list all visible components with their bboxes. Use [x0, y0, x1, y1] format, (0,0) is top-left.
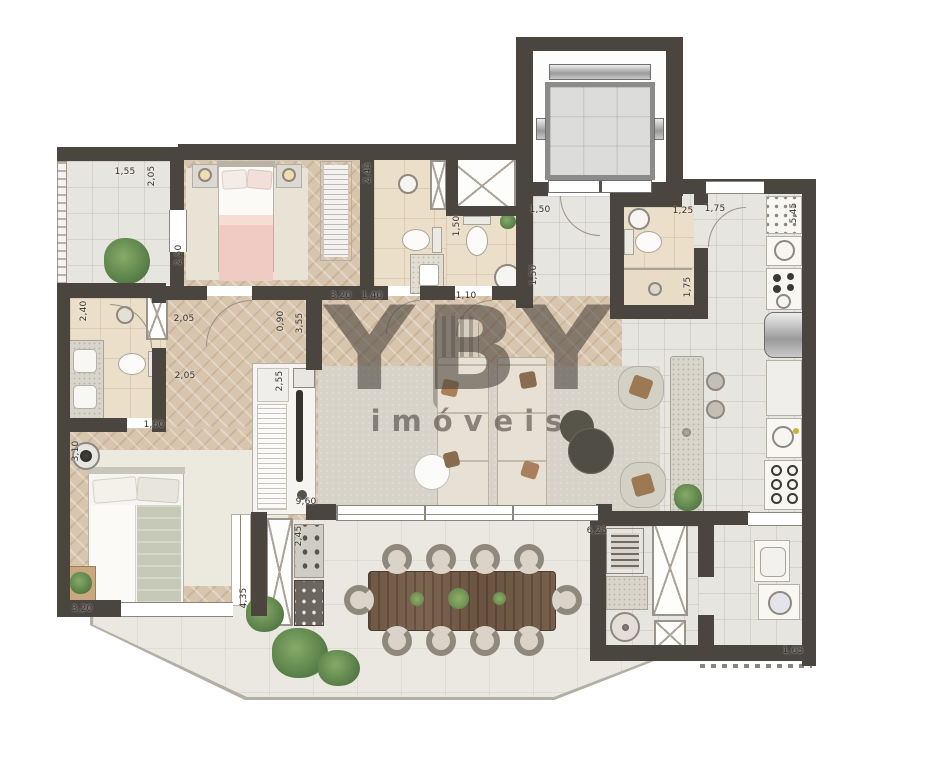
elevator-rail-left [536, 118, 546, 140]
dimension-label: 1,50 [529, 265, 539, 286]
dining-chair [426, 626, 456, 656]
toilet-bowl [118, 353, 146, 375]
bed-duvet-white [91, 505, 136, 603]
refrigerator [764, 312, 804, 358]
island-stool [706, 400, 725, 419]
dining-chair [382, 544, 412, 574]
bed-pillow [246, 169, 273, 190]
tub-basin [760, 547, 786, 577]
elevator-doors [548, 180, 652, 193]
vanity-sink [73, 385, 97, 409]
main-sink-basin [772, 426, 794, 448]
dimension-label: 1,75 [683, 277, 693, 298]
dimension-label: 1,75 [705, 204, 726, 214]
dimension-label: 2,50 [174, 245, 184, 266]
dining-chair [382, 626, 412, 656]
dimension-label: 1,50 [452, 216, 462, 237]
washing-machine [758, 584, 800, 620]
dining-chair [514, 544, 544, 574]
burner [787, 479, 798, 490]
kitchen-cooktop [766, 268, 802, 310]
throw-pillow [628, 374, 654, 400]
toilet-bowl [635, 231, 662, 253]
dining-chair [426, 544, 456, 574]
wall [694, 248, 708, 319]
floor-plan: 1,55 2,05 2,50 3,20 1,40 2,45 1,50 1,10 … [0, 0, 929, 768]
burner [787, 465, 798, 476]
powder-toilet [462, 216, 492, 258]
wall [178, 144, 528, 160]
dimension-label: 2,45 [363, 163, 373, 184]
toilet-bowl [466, 226, 488, 256]
wall [446, 158, 458, 213]
bottle-rack [294, 580, 324, 626]
wall [57, 283, 70, 617]
bed-pillow [136, 477, 180, 504]
gourmet-faucet [622, 624, 629, 631]
dimension-label: 9,60 [296, 497, 317, 507]
wall [698, 615, 714, 661]
wall [306, 286, 322, 370]
dimension-label: 1,65 [783, 646, 804, 656]
bed-headboard [217, 161, 275, 167]
dimension-label: 1,50 [530, 205, 551, 215]
wall [420, 286, 455, 300]
wall [152, 283, 166, 303]
terrace-plant [318, 650, 360, 686]
wall [516, 37, 683, 51]
prep-sink-basin [774, 240, 795, 261]
bed-headboard [87, 467, 185, 474]
kitchen-window [706, 181, 764, 194]
coffee-table-large [568, 428, 614, 474]
washer-door [768, 591, 792, 615]
centerpiece [448, 588, 469, 609]
dimension-label: 2,45 [294, 526, 304, 547]
vanity-sink [73, 349, 97, 373]
dimension-label: 1,25 [673, 206, 694, 216]
kitchen-counter [766, 360, 802, 416]
bedroom2-wardrobe [320, 161, 352, 261]
bedroom2-lamp-right [282, 168, 296, 182]
bed-pillow [221, 169, 247, 190]
armchair-bottom [620, 462, 666, 508]
dimension-label: 3,55 [295, 313, 305, 334]
centerpiece [410, 592, 424, 606]
gourmet-cabinet-tall [652, 520, 688, 616]
burner [771, 493, 782, 504]
shower-head [648, 282, 662, 296]
dining-chair [470, 544, 500, 574]
armchair-top [618, 366, 664, 410]
burner [773, 274, 781, 282]
dimension-label: 2,40 [79, 301, 89, 322]
dimension-label: 3,20 [331, 291, 352, 301]
shower-tray [419, 264, 439, 286]
bbq-grill [606, 528, 644, 574]
burner [787, 273, 794, 280]
av-equipment [293, 368, 315, 388]
dimension-label: 5,45 [789, 203, 799, 224]
powder-plant [500, 214, 516, 229]
living-terrace-windows [336, 505, 598, 521]
projection-dotted-line [700, 664, 812, 668]
tv [296, 390, 303, 482]
wall [698, 511, 750, 525]
sink-faucet [793, 428, 799, 434]
master-bed [88, 468, 184, 606]
toilet-bowl [402, 229, 430, 251]
bed-throw-sage [137, 505, 181, 603]
master-plant [70, 572, 92, 594]
bathroom3-shower [616, 268, 692, 306]
wall [516, 158, 533, 308]
dining-chair [470, 626, 500, 656]
dining-chair [514, 626, 544, 656]
burner [771, 479, 782, 490]
dimension-label: 3,10 [71, 441, 81, 462]
dimension-label: 3,20 [72, 604, 93, 614]
elevator-cab [545, 82, 655, 180]
throw-pillow [519, 371, 538, 390]
shaft-box-slim [430, 160, 447, 210]
dimension-label: 1,10 [456, 291, 477, 301]
toilet-tank [463, 216, 491, 225]
bedroom2-bed [218, 162, 274, 272]
elevator-counterweight [549, 64, 651, 80]
bed-blanket-pink [219, 215, 273, 281]
master-vanity [66, 340, 104, 428]
dimension-label: 2,05 [147, 166, 157, 187]
dimension-label: 1,55 [115, 167, 136, 177]
dimension-label: 4,35 [239, 588, 249, 609]
bathroom2-toilet [402, 226, 442, 254]
wall [251, 512, 267, 616]
burner [787, 284, 794, 291]
master-lamp [80, 450, 92, 462]
burner-large [776, 294, 791, 309]
balcony-railing-louvers [57, 161, 67, 285]
dimension-label: 0,90 [276, 311, 286, 332]
burner [773, 285, 781, 293]
dimension-label: 2,55 [275, 371, 285, 392]
burner [787, 493, 798, 504]
wall [57, 418, 127, 432]
throw-pillow [631, 473, 656, 498]
kitchen-stove6 [764, 460, 804, 510]
wall [802, 192, 816, 666]
dimension-label: 2,05 [175, 371, 196, 381]
closet-shelves [257, 404, 287, 510]
dimension-label: 1,40 [362, 291, 383, 301]
dimension-label: 2,05 [174, 314, 195, 324]
balcony-plant [104, 238, 150, 284]
dining-chair [344, 585, 374, 615]
island-plant [674, 484, 702, 511]
island-stool [706, 372, 725, 391]
centerpiece [493, 592, 506, 605]
wall [610, 193, 624, 319]
master-window [121, 602, 233, 617]
elevator-rail-right [654, 118, 664, 140]
bathroom3-sink [628, 208, 650, 230]
wall [170, 158, 184, 210]
laundry-door [748, 512, 802, 526]
laundry-tub [754, 540, 790, 582]
wall [57, 147, 184, 161]
wall [666, 37, 683, 196]
wall [590, 511, 712, 526]
bedroom2-lamp-left [198, 168, 212, 182]
toilet-tank [432, 227, 442, 253]
bathroom2-sink [398, 174, 418, 194]
throw-pillow [441, 379, 460, 398]
wall [165, 286, 207, 300]
burner [771, 465, 782, 476]
island-faucet [682, 428, 691, 437]
wall [590, 645, 714, 661]
dimension-label: 6,25 [587, 526, 608, 536]
dining-chair [552, 585, 582, 615]
bed-pillow [92, 476, 138, 504]
toilet-tank [624, 229, 634, 255]
gourmet-counter [606, 576, 648, 610]
dimension-label: 1,60 [144, 420, 165, 430]
bathroom3-toilet [624, 228, 664, 256]
wall [57, 283, 166, 298]
